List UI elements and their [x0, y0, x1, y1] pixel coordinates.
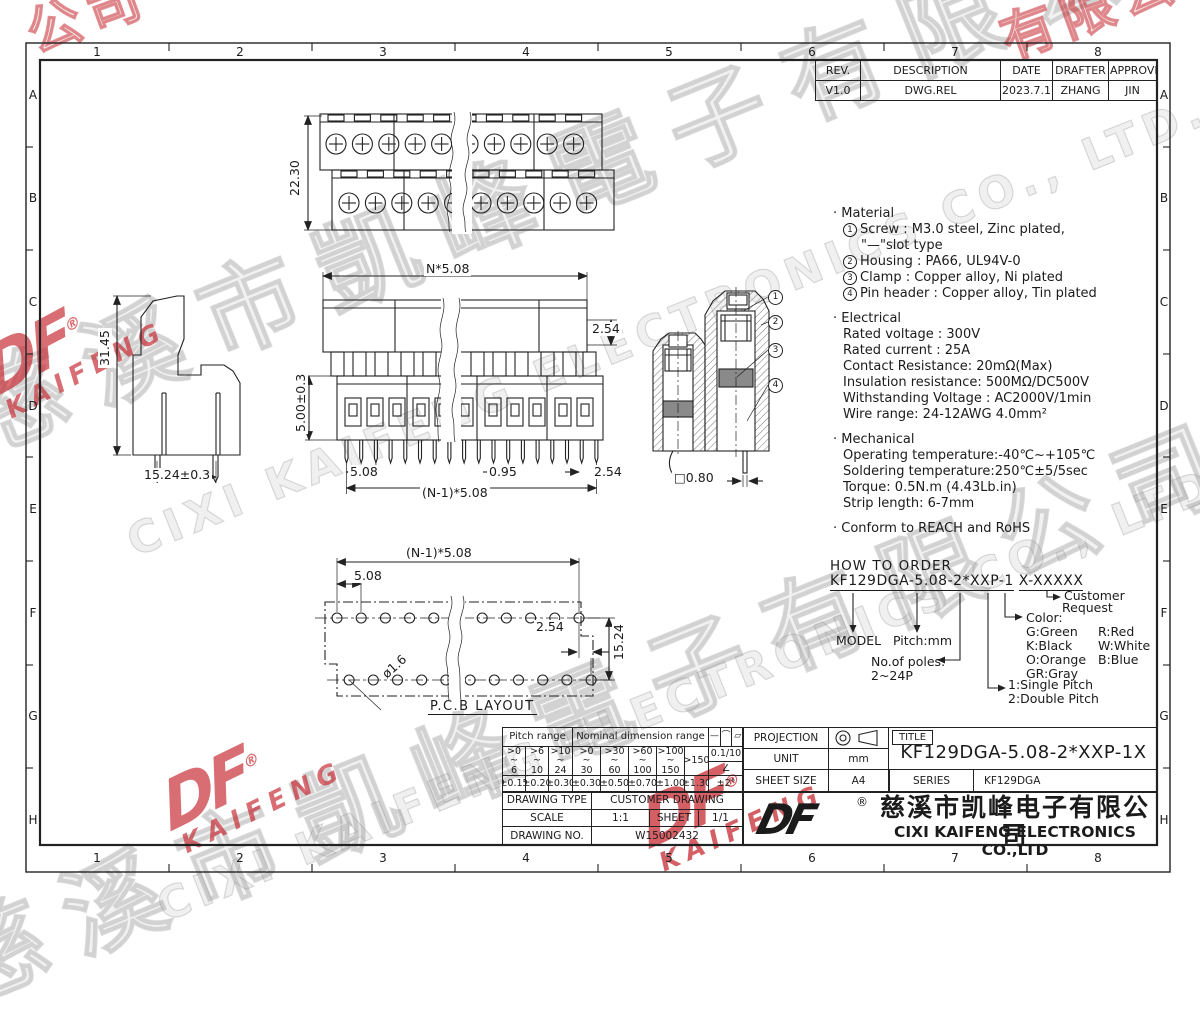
- grid-row-label: E: [1157, 502, 1171, 516]
- order-color-blue: B:Blue: [1098, 653, 1138, 667]
- sheet-label: SHEET: [650, 810, 699, 827]
- bullet-icon: ·: [833, 521, 837, 536]
- dim-pcb-row-spacing: 15.24: [612, 622, 626, 662]
- grid-col-label: 3: [373, 851, 393, 865]
- tolerance-cell: ±0.30: [573, 776, 601, 793]
- approver-value: JIN: [1109, 81, 1157, 101]
- title-area: TITLE KF129DGA-5.08-2*XXP-1X: [889, 728, 1158, 770]
- pcb-layout-drawing: [303, 540, 635, 722]
- nominal-range-cell: >30 ~ 60: [601, 747, 629, 776]
- angle-tolerance-cell: ±2°: [709, 776, 744, 793]
- grid-row-label: D: [26, 399, 40, 413]
- company-name-english: CIXI KAIFENG ELECTRONICS CO.,LTD: [874, 823, 1156, 859]
- order-color-white: W:White: [1098, 639, 1150, 653]
- flatness-angle-cell: 0.1/10∠: [709, 747, 744, 776]
- series-label: SERIES: [889, 770, 974, 792]
- drafter-value: ZHANG: [1053, 81, 1109, 101]
- scale-value: 1:1: [592, 810, 650, 827]
- dim-front-pin-width: 0.95: [487, 465, 519, 479]
- pitch-range-cell: >10 ~ 24: [549, 747, 573, 776]
- grid-row-label: B: [26, 191, 40, 205]
- callout-balloon-1: 1: [768, 290, 783, 305]
- tolerance-cell: ±0.50: [601, 776, 629, 793]
- nominal-range-cell: >60 ~ 100: [629, 747, 657, 776]
- callout-balloon-3: 3: [768, 343, 783, 358]
- dim-pcb-span: (N-1)*5.08: [404, 546, 474, 560]
- order-part-number: KF129DGA-5.08-2*XXP-1 X-XXXXX: [830, 574, 1083, 588]
- unit-label: UNIT: [744, 749, 829, 770]
- pcb-layout-label: P.C.B LAYOUT: [428, 700, 537, 715]
- grid-col-label: 4: [516, 45, 536, 59]
- first-angle-projection-icon: [831, 729, 887, 747]
- grid-col-label: 7: [945, 45, 965, 59]
- date-header: DATE: [1001, 61, 1053, 81]
- revision-table: REV. DESCRIPTION DATE DRAFTER APPROVER V…: [815, 60, 1157, 101]
- angle-icon: ∠: [709, 762, 743, 776]
- bullet-icon: ·: [833, 432, 837, 447]
- description-value: DWG.REL: [861, 81, 1001, 101]
- tolerance-cell: ±1.30: [685, 776, 709, 793]
- grid-col-label: 6: [802, 851, 822, 865]
- tolerance-cell: ±0.70: [629, 776, 657, 793]
- dim-side-width: 15.24±0.3: [142, 468, 212, 482]
- callout-balloon-2: 2: [768, 315, 783, 330]
- nominal-range-cell: >0 ~ 30: [573, 747, 601, 776]
- dim-front-total-width: N*5.08: [424, 262, 471, 276]
- sheet-size-value: A4: [829, 770, 889, 792]
- tolerance-cell: ±0.20: [526, 776, 549, 793]
- electrical-section: · Electrical Rated voltage : 300V Rated …: [833, 311, 1173, 423]
- circled-number-icon: 3: [843, 271, 857, 285]
- drawing-type-value: CUSTOMER DRAWING: [592, 792, 742, 809]
- grid-row-label: E: [26, 502, 40, 516]
- df-logo-icon: DF: [752, 795, 818, 844]
- order-color-title: Color:: [1026, 611, 1063, 625]
- dim-top-view-height: 22.30: [288, 158, 302, 198]
- drawing-no-value: W15002432: [592, 827, 742, 844]
- geometry-symbols-header: —⌒▱: [709, 728, 744, 747]
- order-color-red: R:Red: [1098, 625, 1134, 639]
- drawing-info-table: DRAWING TYPE CUSTOMER DRAWING SCALE 1:1 …: [502, 792, 743, 845]
- grid-col-label: 3: [373, 45, 393, 59]
- grid-row-label: G: [1157, 709, 1171, 723]
- grid-col-label: 2: [230, 851, 250, 865]
- grid-col-label: 5: [659, 851, 679, 865]
- pitch-range-cell: >0 ~ 6: [503, 747, 526, 776]
- title-block: PROJECTION UNIT mm SHEET SIZE A4 TITLE K…: [743, 727, 1157, 845]
- pitch-range-cell: >6 ~ 10: [526, 747, 549, 776]
- order-poles-label: No.of poles:: [871, 655, 945, 669]
- registered-mark: ®: [856, 795, 868, 809]
- grid-col-label: 1: [87, 851, 107, 865]
- flatness-tolerance: 0.1/10: [709, 747, 743, 762]
- nominal-range-header: Nominal dimension range: [573, 728, 709, 747]
- dim-pcb-pitch: 5.08: [352, 569, 384, 583]
- dim-side-height: 31.45: [98, 328, 112, 368]
- dim-pin-square: □0.80: [672, 471, 716, 485]
- rev-value: V1.0: [816, 81, 861, 101]
- circled-number-icon: 2: [843, 255, 857, 269]
- callout-balloon-4: 4: [768, 378, 783, 393]
- projection-label: PROJECTION: [744, 728, 829, 749]
- mechanical-title: Mechanical: [841, 432, 914, 447]
- grid-row-label: A: [1157, 88, 1171, 102]
- description-header: DESCRIPTION: [861, 61, 1001, 81]
- side-view-drawing: [103, 281, 273, 489]
- order-pitch-label: Pitch:mm: [893, 634, 952, 648]
- series-value: KF129DGA: [974, 770, 1158, 792]
- order-double-pitch-label: 2:Double Pitch: [1008, 692, 1099, 706]
- title-value: KF129DGA-5.08-2*XXP-1X: [889, 742, 1158, 763]
- dim-front-pitch: 5.08: [348, 465, 380, 479]
- drawing-no-label: DRAWING NO.: [503, 827, 592, 844]
- specifications-block: · Material 1Screw : M3.0 steel, Zinc pla…: [833, 206, 1173, 546]
- material-section: · Material 1Screw : M3.0 steel, Zinc pla…: [833, 206, 1173, 302]
- sheet-value: 1/1: [699, 810, 742, 827]
- revision-data-row: V1.0 DWG.REL 2023.7.17 ZHANG JIN: [816, 81, 1157, 101]
- material-title: Material: [841, 206, 894, 221]
- grid-col-label: 1: [87, 45, 107, 59]
- arc-icon: ⌒: [721, 728, 733, 746]
- grid-row-label: C: [1157, 295, 1171, 309]
- drafter-header: DRAFTER: [1053, 61, 1109, 81]
- date-value: 2023.7.17: [1001, 81, 1053, 101]
- order-poles-range: 2~24P: [871, 669, 913, 683]
- approver-header: APPROVER: [1109, 61, 1157, 81]
- grid-row-label: A: [26, 88, 40, 102]
- grid-row-label: H: [1157, 813, 1171, 827]
- grid-row-label: F: [1157, 606, 1171, 620]
- rev-header: REV.: [816, 61, 861, 81]
- scale-label: SCALE: [503, 810, 592, 827]
- unit-value: mm: [829, 749, 889, 770]
- tolerance-cell: ±0.30: [549, 776, 573, 793]
- bullet-icon: ·: [833, 311, 837, 326]
- engineering-drawing-page: { "page":{"line_color":"#222222","stamp_…: [0, 0, 1200, 910]
- top-view-drawing: [302, 110, 614, 236]
- circled-number-icon: 1: [843, 223, 857, 237]
- bullet-icon: ·: [833, 206, 837, 221]
- grid-col-label: 6: [802, 45, 822, 59]
- tolerance-cell: ±1.00: [657, 776, 685, 793]
- mechanical-section: · Mechanical Operating temperature:-40℃~…: [833, 432, 1173, 512]
- grid-col-label: 2: [230, 45, 250, 59]
- dim-front-right: 2.54: [590, 322, 622, 336]
- order-color-black: K:Black: [1026, 639, 1072, 653]
- order-request-label: Request: [1062, 601, 1113, 615]
- order-color-green: G:Green: [1026, 625, 1078, 639]
- grid-row-label: B: [1157, 191, 1171, 205]
- drawing-type-label: DRAWING TYPE: [503, 792, 592, 809]
- nominal-range-cell: >100 ~ 150: [657, 747, 685, 776]
- grid-row-label: F: [26, 606, 40, 620]
- pitch-range-header: Pitch range: [503, 728, 573, 747]
- tolerance-cell: ±0.15: [503, 776, 526, 793]
- dim-front-span: (N-1)*5.08: [420, 486, 490, 500]
- electrical-title: Electrical: [841, 311, 901, 326]
- how-to-order-title: HOW TO ORDER: [830, 559, 952, 573]
- grid-row-label: H: [26, 813, 40, 827]
- grid-col-label: 8: [1088, 45, 1108, 59]
- order-color-orange: O:Orange: [1026, 653, 1086, 667]
- circled-number-icon: 4: [843, 287, 857, 301]
- grid-row-label: C: [26, 295, 40, 309]
- straightness-icon: —: [709, 728, 721, 746]
- projection-symbol-cell: [829, 728, 889, 749]
- sheet-size-label: SHEET SIZE: [744, 770, 829, 792]
- dim-front-end: 2.54: [592, 465, 624, 479]
- dim-front-left-height: 5.00±0.3: [294, 372, 308, 434]
- grid-col-label: 4: [516, 851, 536, 865]
- front-view-drawing: [295, 258, 630, 508]
- company-area: DF ® 慈溪市凯峰电子有限公司 CIXI KAIFENG ELECTRONIC…: [744, 792, 1158, 844]
- order-color-gray: GR:Gray: [1026, 667, 1078, 681]
- tolerance-table: Pitch range Nominal dimension range —⌒▱ …: [502, 727, 743, 792]
- dim-pcb-row-offset: 2.54: [534, 620, 566, 634]
- order-model-label: MODEL: [836, 634, 881, 648]
- revision-header-row: REV. DESCRIPTION DATE DRAFTER APPROVER: [816, 61, 1157, 81]
- nominal-range-cell: >150: [685, 747, 709, 776]
- grid-row-label: D: [1157, 399, 1171, 413]
- conform-note: · Conform to REACH and RoHS: [833, 521, 1173, 537]
- grid-row-label: G: [26, 709, 40, 723]
- grid-col-label: 5: [659, 45, 679, 59]
- flatness-icon: ▱: [732, 728, 743, 746]
